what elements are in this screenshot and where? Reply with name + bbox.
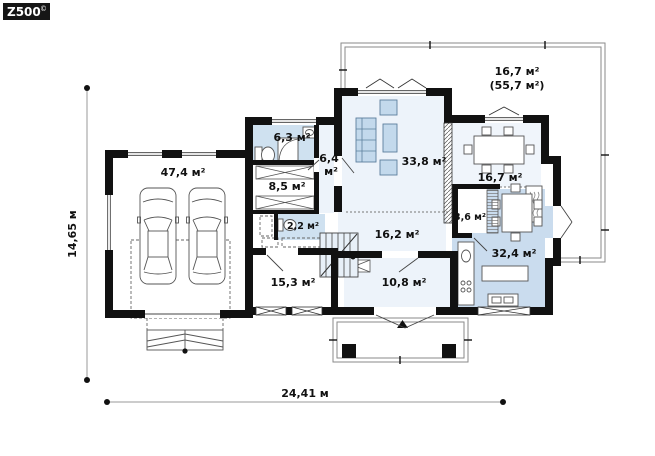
label-terrace-area-line2: (55,7 м²): [490, 79, 545, 92]
logo: Z500 ©: [3, 3, 50, 20]
label-bathroom-area: 6,3 м²: [273, 131, 310, 144]
dining-table: [474, 136, 524, 164]
entry-door-opening: [374, 307, 436, 315]
porch-column-right: [442, 344, 456, 358]
chimney-wall: [444, 123, 452, 223]
label-corridor-area-line2: м²: [324, 165, 338, 178]
dimension-height: 14,65 м: [66, 85, 90, 383]
armchair-top: [380, 100, 397, 115]
kitchen-island: [482, 266, 528, 281]
label-wc-area: 2,2 м²: [287, 221, 319, 232]
porch-column-left: [342, 344, 356, 358]
label-living-area: 33,8 м²: [402, 155, 447, 168]
label-room-left-area: 15,3 м²: [271, 276, 316, 289]
floor-plan-svg: 24,41 м 14,65 м 47,4 м² 6,3 м² 6,4 м² 8,…: [0, 0, 655, 456]
car-right: [187, 188, 228, 284]
dimension-width: 24,41 м: [104, 387, 506, 405]
pantry-shelf: [487, 190, 498, 233]
label-kitchen-area: 32,4 м²: [492, 247, 537, 260]
label-hall-area: 16,2 м²: [375, 228, 420, 241]
coffee-table: [383, 124, 397, 152]
garage-door-panel: [147, 330, 223, 350]
armchair-bottom: [380, 160, 397, 175]
kitchen-sink: [462, 250, 471, 262]
logo-text: Z500: [7, 5, 41, 19]
label-pantry-area: 3,6 м²: [454, 212, 486, 223]
label-corridor-area-line1: 6,4: [319, 152, 339, 165]
label-dining-area: 16,7 м²: [478, 171, 523, 184]
label-terrace-area-line1: 16,7 м²: [495, 65, 540, 78]
floor-plan-canvas: 24,41 м 14,65 м 47,4 м² 6,3 м² 6,4 м² 8,…: [0, 0, 655, 456]
label-garage-area: 47,4 м²: [161, 166, 206, 179]
kitchen-table: [502, 194, 532, 232]
height-dimension-label: 14,65 м: [66, 210, 79, 258]
logo-copyright: ©: [40, 5, 47, 13]
porch: [329, 318, 472, 364]
room-pantry: [458, 189, 487, 233]
width-dimension-label: 24,41 м: [281, 387, 329, 400]
label-room-bottom-area: 10,8 м²: [382, 276, 427, 289]
label-wardrobe-area: 8,5 м²: [268, 180, 305, 193]
car-left: [138, 188, 179, 284]
